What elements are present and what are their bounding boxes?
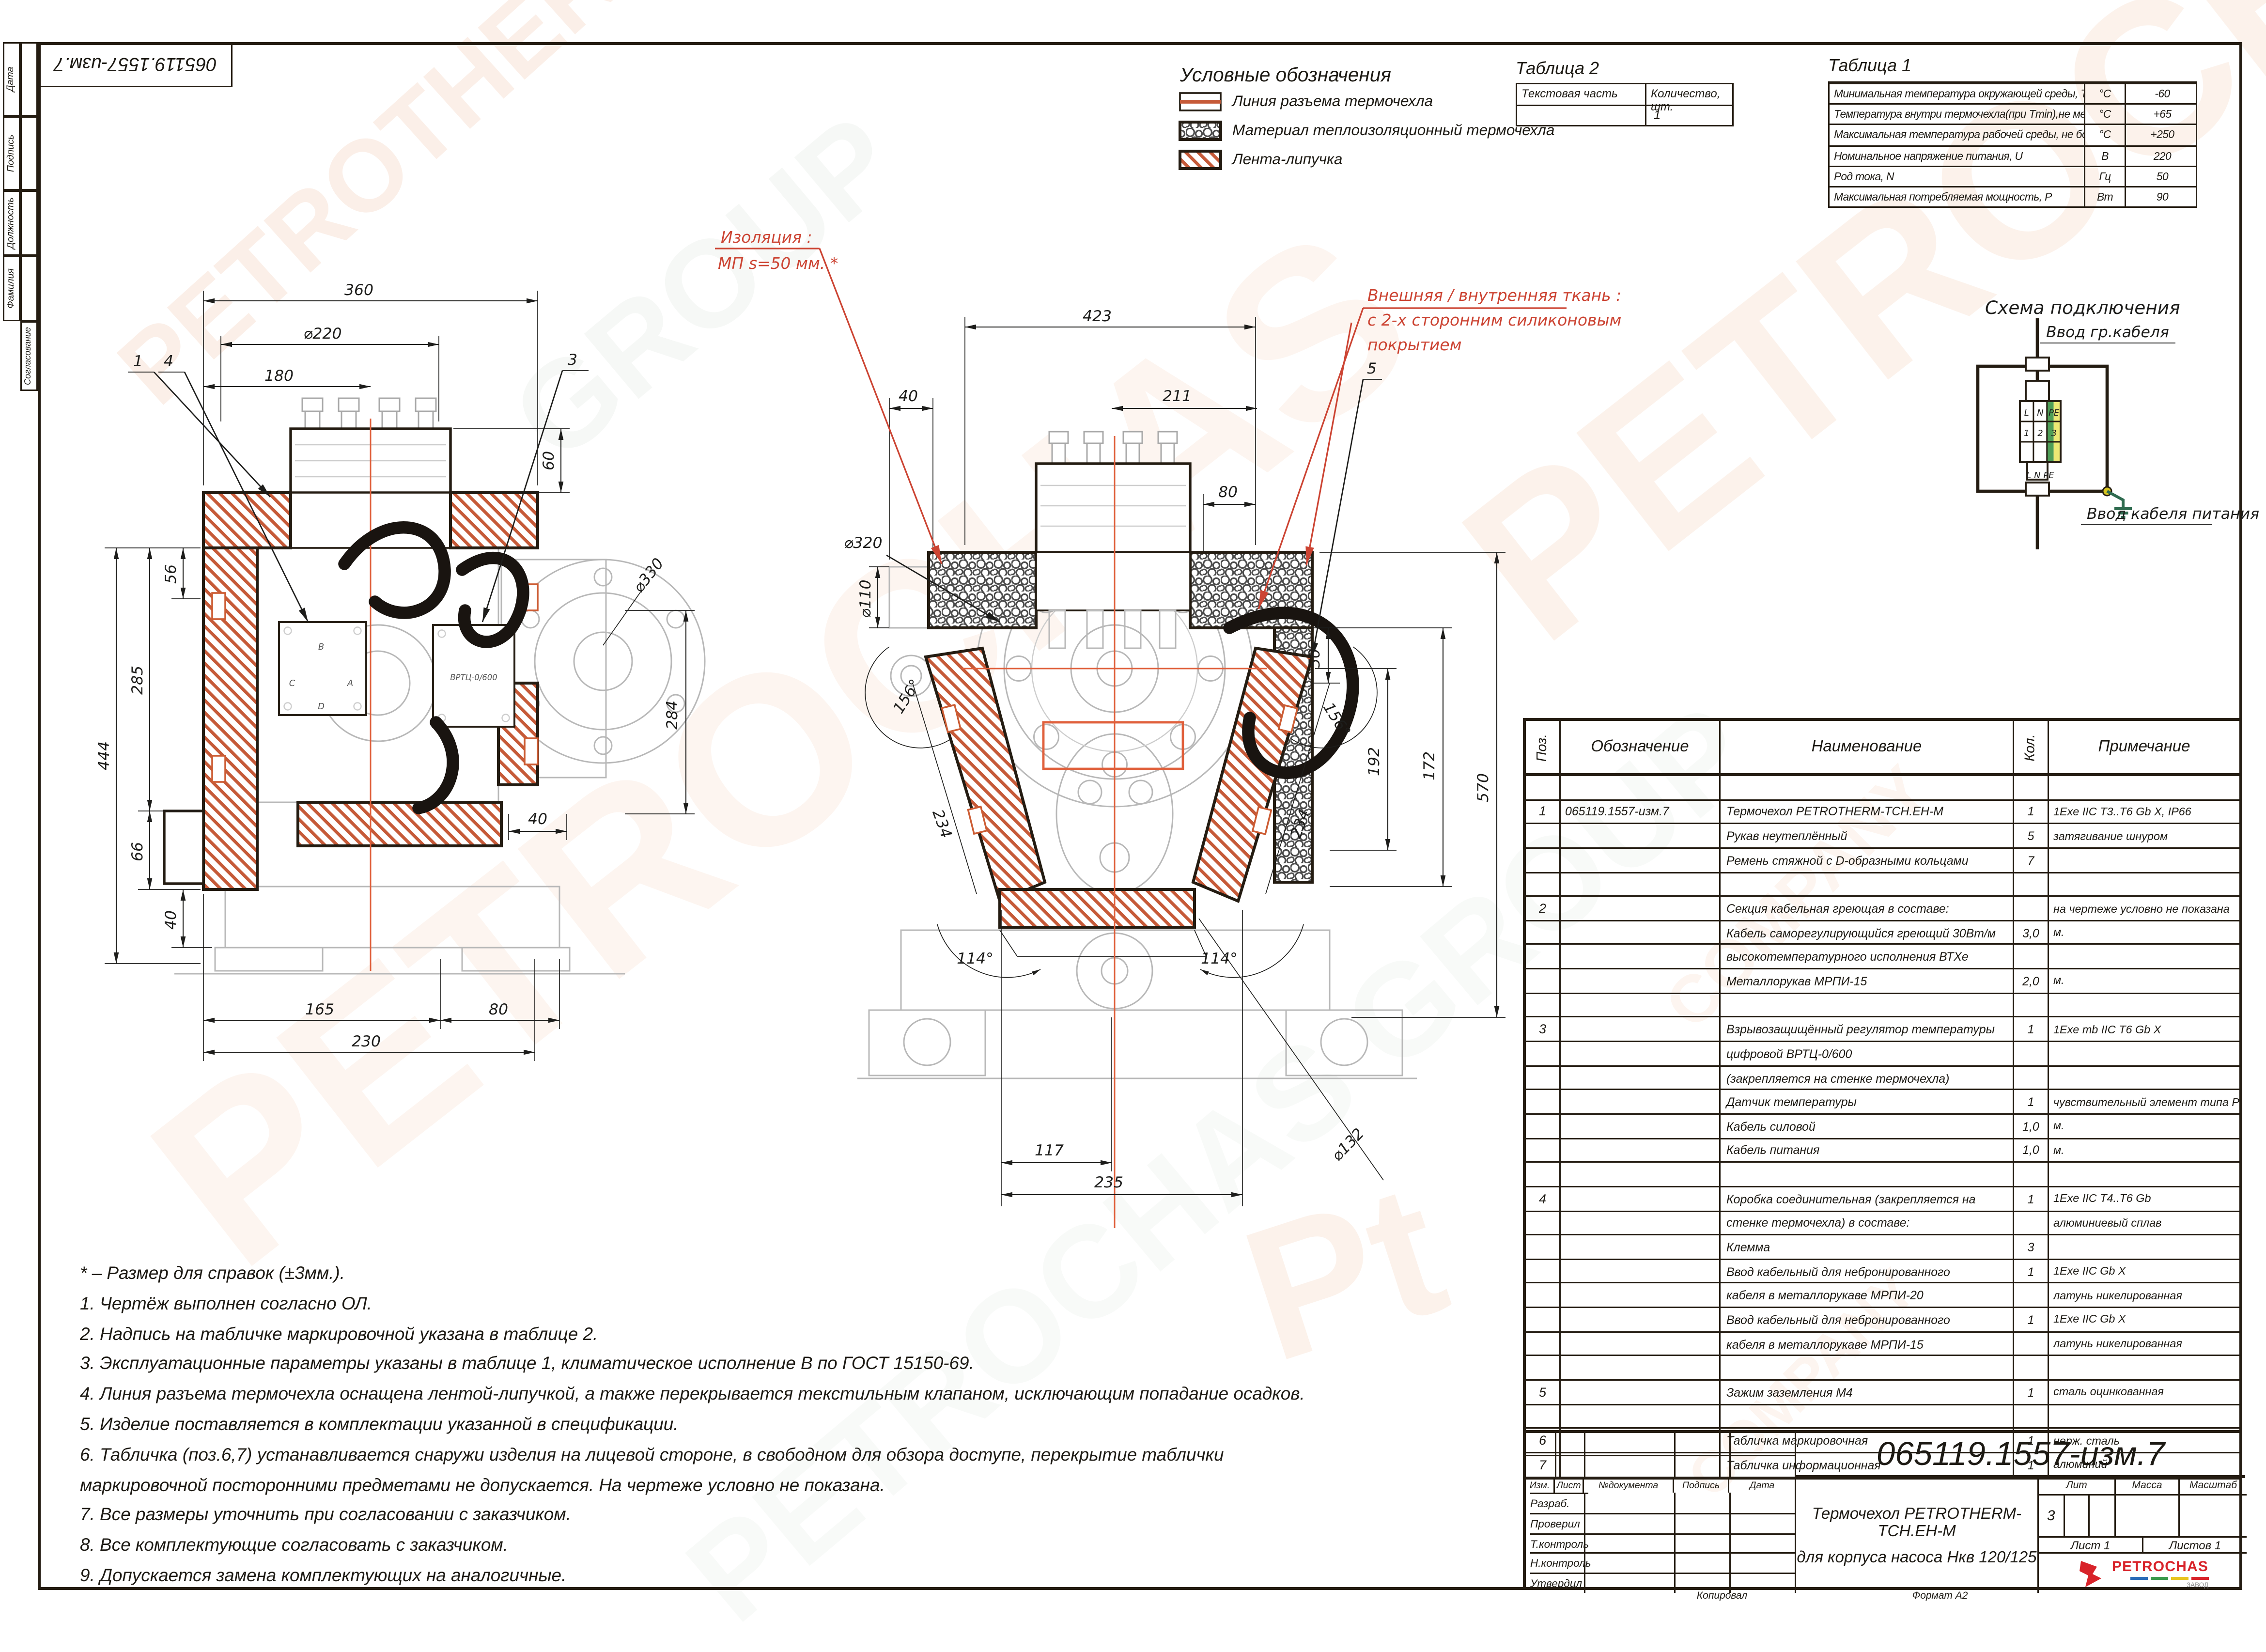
parts-row: 5 Зажим заземления М4 1 сталь оцинкованн…: [1526, 1379, 2239, 1403]
legend-swatches: [1180, 93, 1221, 169]
drawing-title: Термочехол PETROTHERM-TCH.EH-M для корпу…: [1795, 1477, 2037, 1593]
logo-bar-blue: [2130, 1577, 2147, 1580]
part-qty: [2014, 994, 2049, 1016]
flange-block: [1036, 464, 1190, 552]
param-value: 90: [2126, 187, 2199, 207]
part-designation: [1561, 1139, 1721, 1162]
staff-label: Т.контроль: [1530, 1533, 1588, 1553]
part-note: [2049, 1163, 2239, 1186]
terminal-bottom-labels: L N PE: [2026, 470, 2054, 481]
parts-row: кабеля в металлорукаве МРПИ-20 латунь ни…: [1526, 1282, 2239, 1307]
staff-rows: Разраб. Проверил Т.контроль Н.контроль У…: [1526, 1493, 1795, 1593]
part-name: Датчик температуры: [1721, 1091, 2014, 1113]
sheet: PETROCHAS PETROTHERM GROUP COMPANY Pt PE…: [0, 0, 2266, 1603]
part-name: Зажим заземления М4: [1721, 1381, 2014, 1403]
param-name: Минимальная температура окружающей среды…: [1830, 84, 2085, 104]
param-value: -60: [2126, 84, 2199, 104]
petrochas-logo-text: PETROCHAS: [2112, 1559, 2208, 1575]
parts-row: [1526, 775, 2239, 799]
part-designation: [1561, 1066, 1721, 1089]
parts-row: цифровой ВРТЦ-0/600: [1526, 1041, 2239, 1065]
mass-value: [2116, 1496, 2180, 1538]
dim-label: 180: [264, 367, 294, 385]
lit-mass-scale-block: Лит Масса Масштаб 3 Лист 1 Листов 1 PETR…: [2037, 1477, 2245, 1593]
dim-label: 40: [528, 810, 547, 828]
part-qty: [2014, 1212, 2049, 1234]
part-pos: [1526, 1091, 1561, 1113]
table-2-header: Текстовая часть: [1517, 84, 1646, 106]
dim-label: 165: [305, 1001, 334, 1018]
note-line: 1. Чертёж выполнен согласно ОЛ.: [80, 1289, 1519, 1319]
schema-top-label: Ввод гр.кабеля: [2046, 324, 2169, 341]
part-note: [2049, 873, 2239, 896]
part-name: (закрепляется на стенке термочехла): [1721, 1066, 2014, 1089]
front-view-callouts: 5: [1312, 360, 1382, 657]
param-value: +65: [2126, 105, 2199, 125]
part-qty: 2,0: [2014, 969, 2049, 992]
parts-row: Кабель силовой 1,0 м.: [1526, 1113, 2239, 1138]
param-value: +250: [2126, 125, 2199, 145]
part-note: [2049, 945, 2239, 968]
part-name: [1721, 1405, 2014, 1428]
part-designation: [1561, 1381, 1721, 1403]
table-1-row: Номинальное напряжение питания, U В 220: [1830, 145, 2196, 166]
logo-bar-red: [2191, 1577, 2208, 1580]
param-unit: °С: [2085, 105, 2126, 125]
parts-table: Поз. Обозначение Наименование Кол. Приме…: [1523, 718, 2242, 1479]
part-qty: [2014, 945, 2049, 968]
dim-label: 40: [899, 388, 918, 405]
callout-label: 4: [164, 353, 173, 370]
parts-header-note: Примечание: [2049, 721, 2239, 773]
dim-label: 80: [489, 1001, 508, 1018]
part-designation: [1561, 897, 1721, 920]
petrochas-logo-sub: ЗАВОД: [2187, 1581, 2208, 1589]
part-name: Ввод кабельный для небронированного: [1721, 1308, 2014, 1331]
dim-label: 444: [95, 741, 113, 770]
dim-label: 156°: [890, 676, 924, 717]
parts-row: [1526, 1355, 2239, 1379]
part-pos: [1526, 1139, 1561, 1162]
table-1-title: Таблица 1: [1828, 55, 1911, 76]
part-designation: [1561, 1212, 1721, 1234]
part-name: Металлорукав МРПИ-15: [1721, 969, 2014, 992]
part-pos: [1526, 945, 1561, 968]
dim-label: 60: [540, 451, 558, 470]
table-2-cell: [1517, 106, 1646, 125]
part-pos: [1526, 1042, 1561, 1065]
terminal-label: 2: [2037, 428, 2043, 438]
left-view: B C A D ВРТЦ-0/600: [95, 281, 705, 1061]
parts-row: Кабель питания 1,0 м.: [1526, 1138, 2239, 1162]
table-1-row: Минимальная температура окружающей среды…: [1830, 83, 2196, 104]
callout-label: 1: [133, 353, 143, 370]
junction-box: B C A D: [279, 622, 366, 715]
parts-header-desig: Обозначение: [1561, 721, 1721, 773]
dim-label: 50: [1306, 649, 1323, 668]
part-name: [1721, 873, 2014, 896]
dim-label: ⌀320: [844, 534, 882, 552]
dim-label: 80: [1218, 483, 1238, 501]
dim-label: 117: [1035, 1142, 1064, 1159]
parts-row: [1526, 872, 2239, 896]
part-pos: [1526, 849, 1561, 872]
part-designation: [1561, 776, 1721, 799]
staff-label: Утвердил: [1530, 1573, 1588, 1593]
parts-row: Ввод кабельный для небронированного 1 1E…: [1526, 1258, 2239, 1282]
part-note: [2049, 776, 2239, 799]
parts-row: стенке термочехла) в составе: алюминиевы…: [1526, 1210, 2239, 1234]
part-qty: 1: [2014, 1308, 2049, 1331]
part-name: Кабель саморегулирующийся греющий 30Вт/м: [1721, 921, 2014, 944]
part-pos: [1526, 921, 1561, 944]
part-designation: [1561, 1356, 1721, 1379]
part-qty: [2014, 1284, 2049, 1307]
table-2-cell: 1: [1646, 106, 1732, 125]
dim-label: 234: [929, 807, 955, 841]
part-name: Коробка соединительная (закрепляется на: [1721, 1187, 2014, 1210]
part-designation: [1561, 1405, 1721, 1428]
part-designation: [1561, 1236, 1721, 1259]
part-name: Секция кабельная греющая в составе:: [1721, 897, 2014, 920]
part-name: Взрывозащищённый регулятор температуры: [1721, 1018, 2014, 1041]
thermal-cover-wedges: [926, 648, 1312, 956]
param-name: Максимальная потребляемая мощность, P: [1830, 187, 2085, 207]
regulator-label: ВРТЦ-0/600: [450, 673, 497, 682]
dim-label: 230: [352, 1033, 381, 1050]
doc-number: 065119.1557-изм.7: [1795, 1433, 2245, 1477]
note-line: маркировочной посторонними предметами не…: [80, 1470, 1519, 1500]
param-unit: Вт: [2085, 187, 2126, 207]
note-line: 4. Линия разъема термочехла оснащена лен…: [80, 1380, 1519, 1410]
annotation-insulation: МП s=50 мм. *: [718, 254, 838, 273]
flange-lower: [1036, 552, 1190, 610]
part-pos: 5: [1526, 1381, 1561, 1403]
param-unit: Гц: [2085, 167, 2126, 186]
table-1-row: Максимальная температура рабочей среды, …: [1830, 124, 2196, 145]
kopiroval-label: Копировал: [1642, 1591, 1802, 1602]
part-name: Клемма: [1721, 1236, 2014, 1259]
part-designation: [1561, 1187, 1721, 1210]
part-qty: [2014, 1163, 2049, 1186]
part-qty: 1: [2014, 1260, 2049, 1282]
part-designation: [1561, 1042, 1721, 1065]
table-1-row: Род тока, N Гц 50: [1830, 165, 2196, 186]
part-qty: 7: [2014, 849, 2049, 872]
dim-label: 423: [1083, 308, 1112, 325]
parts-row: Металлорукав МРПИ-15 2,0 м.: [1526, 968, 2239, 992]
part-pos: [1526, 1284, 1561, 1307]
part-qty: [2014, 776, 2049, 799]
notes: * – Размер для справок (±3мм.). 1. Чертё…: [80, 1259, 1519, 1591]
dim-label: 114°: [1201, 950, 1238, 967]
legend-title: Условные обозначения: [1180, 64, 1391, 86]
part-qty: [2014, 1356, 2049, 1379]
parts-row: Ремень стяжной с D-образными кольцами 7: [1526, 847, 2239, 872]
col-podpis: Подпись: [1674, 1478, 1729, 1493]
annotation-fabric: с 2-х сторонним силиконовым: [1367, 311, 1621, 329]
scale-label: Масштаб: [2180, 1478, 2247, 1494]
dim-label: ⌀220: [303, 325, 341, 343]
part-qty: [2014, 1066, 2049, 1089]
part-designation: [1561, 1332, 1721, 1355]
parts-row: Рукав неутеплённый 5 затягивание шнуром: [1526, 823, 2239, 847]
part-pos: [1526, 1236, 1561, 1259]
parts-row: [1526, 1162, 2239, 1186]
col-data: Дата: [1729, 1478, 1795, 1493]
part-qty: [2014, 1332, 2049, 1355]
staff-label: Разраб.: [1530, 1493, 1588, 1512]
sheets-total: Листов 1: [2143, 1538, 2247, 1554]
part-designation: [1561, 1260, 1721, 1282]
part-name: стенке термочехла) в составе:: [1721, 1212, 2014, 1234]
staff-label: Н.контроль: [1530, 1553, 1588, 1573]
part-name: [1721, 1163, 2014, 1186]
annotation-insulation: Изоляция :: [721, 228, 812, 247]
callout-label: 5: [1367, 360, 1377, 377]
parts-row: 2 Секция кабельная греющая в составе: на…: [1526, 896, 2239, 920]
logo-bar-yellow: [2171, 1577, 2188, 1580]
part-designation: 065119.1557-изм.7: [1561, 800, 1721, 823]
part-note: алюминиевый сплав: [2049, 1212, 2239, 1234]
col-docnum: №документа: [1584, 1478, 1674, 1493]
title-block: 065119.1557-изм.7 Изм. Лист №документа П…: [1523, 1430, 2242, 1590]
dim-label: 235: [1094, 1174, 1123, 1191]
part-name: [1721, 776, 2014, 799]
part-note: [2049, 1066, 2239, 1089]
cover-foot: [164, 811, 203, 884]
terminal-label: N: [2037, 408, 2043, 418]
part-pos: [1526, 1066, 1561, 1089]
parts-row: 4 Коробка соединительная (закрепляется н…: [1526, 1186, 2239, 1210]
part-pos: [1526, 969, 1561, 992]
param-unit: В: [2085, 146, 2126, 166]
dim-label: 360: [344, 281, 373, 299]
part-qty: 1,0: [2014, 1139, 2049, 1162]
part-note: [2049, 1236, 2239, 1259]
company-logo: PETROCHAS ЗАВОД: [2039, 1552, 2247, 1594]
part-designation: [1561, 1163, 1721, 1186]
part-note: м.: [2049, 969, 2239, 992]
note-line: * – Размер для справок (±3мм.).: [80, 1259, 1519, 1289]
terminal-block: L N PE 1 2 3: [2020, 401, 2061, 462]
part-note: м.: [2049, 921, 2239, 944]
terminal-label: 3: [2051, 428, 2056, 438]
part-designation: [1561, 1091, 1721, 1113]
part-note: затягивание шнуром: [2049, 825, 2239, 847]
part-pos: [1526, 1332, 1561, 1355]
part-qty: 1,0: [2014, 1115, 2049, 1138]
part-qty: 3,0: [2014, 921, 2049, 944]
part-note: 1Exe mb IIC T6 Gb X: [2049, 1018, 2239, 1041]
jb-terminal-label: B: [318, 642, 324, 652]
schema-bottom-label: Ввод кабеля питания: [2087, 505, 2259, 523]
dim-label: ⌀110: [857, 579, 874, 618]
parts-row: 3 Взрывозащищённый регулятор температуры…: [1526, 1016, 2239, 1041]
part-name: Ремень стяжной с D-образными кольцами: [1721, 849, 2014, 872]
annotation-fabric: покрытием: [1367, 335, 1461, 354]
legend-item-label: Материал теплоизоляционный термочехла: [1232, 122, 1554, 140]
lit-value: 3: [2039, 1496, 2064, 1538]
param-unit: °С: [2085, 84, 2126, 104]
staff-label: Проверил: [1530, 1512, 1588, 1532]
dim-label: 56: [162, 564, 180, 584]
part-note: [2049, 994, 2239, 1016]
front-view: 423 40 211 80 ⌀110 ⌀320 50 192: [715, 228, 1621, 1228]
part-pos: [1526, 1115, 1561, 1138]
part-qty: 1: [2014, 1018, 2049, 1041]
flange-bolts: [302, 398, 436, 429]
drawing-title-line1: Термочехол PETROTHERM-TCH.EH-M: [1796, 1505, 2037, 1540]
dim-label: 284: [664, 701, 681, 730]
parts-row: Ввод кабельный для небронированного 1 1E…: [1526, 1307, 2239, 1331]
note-line: 9. Допускается замена комплектующих на а…: [80, 1561, 1519, 1591]
part-pos: 1: [1526, 800, 1561, 823]
heating-section-outline: [1043, 722, 1183, 769]
part-qty: [2014, 873, 2049, 896]
note-line: 8. Все комплектующие согласовать с заказ…: [80, 1531, 1519, 1561]
jb-terminal-label: A: [347, 678, 353, 688]
part-qty: [2014, 1405, 2049, 1428]
part-note: 1Exe IIC Gb X: [2049, 1308, 2239, 1331]
part-pos: [1526, 1260, 1561, 1282]
part-pos: [1526, 1163, 1561, 1186]
part-pos: [1526, 1308, 1561, 1331]
part-note: 1Exe IIC T4..T6 Gb: [2049, 1187, 2239, 1210]
dim-label: 211: [1163, 388, 1192, 405]
part-pos: 4: [1526, 1187, 1561, 1210]
drawing-title-line2: для корпуса насоса Нкв 120/125: [1797, 1549, 2036, 1566]
param-value: 220: [2126, 146, 2199, 166]
annotation-fabric: Внешняя / внутренняя ткань :: [1367, 286, 1621, 305]
param-name: Номинальное напряжение питания, U: [1830, 146, 2085, 166]
format-label: Формат А2: [1860, 1591, 2020, 1602]
part-note: м.: [2049, 1139, 2239, 1162]
part-note: [2049, 849, 2239, 872]
terminal-label: 1: [2024, 428, 2029, 438]
dim-label: 192: [1366, 747, 1383, 776]
table-1-row: Максимальная потребляемая мощность, P Вт…: [1830, 186, 2196, 207]
terminal-label: PE: [2049, 408, 2060, 418]
dim-label: 570: [1474, 773, 1492, 802]
part-pos: [1526, 1212, 1561, 1234]
part-pos: 2: [1526, 897, 1561, 920]
table-1-row: Температура внутри термочехла(при Tmin),…: [1830, 104, 2196, 125]
note-line: 6. Табличка (поз.6,7) устанавливается сн…: [80, 1440, 1519, 1470]
part-designation: [1561, 921, 1721, 944]
petrochas-logo-icon: [2077, 1558, 2106, 1590]
table-2-title: Таблица 2: [1516, 58, 1599, 78]
terminal-label: L: [2024, 408, 2029, 418]
legend-item-label: Лента-липучка: [1232, 151, 1342, 169]
part-designation: [1561, 825, 1721, 847]
parts-row: Датчик температуры 1 чувствительный элем…: [1526, 1089, 2239, 1113]
part-name: кабеля в металлорукаве МРПИ-15: [1721, 1332, 2014, 1355]
parts-header-pos: Поз.: [1535, 733, 1551, 761]
parts-row: 1 065119.1557-изм.7 Термочехол PETROTHER…: [1526, 799, 2239, 823]
part-note: м.: [2049, 1115, 2239, 1138]
part-designation: [1561, 945, 1721, 968]
flange-bolts: [1049, 432, 1177, 464]
param-name: Род тока, N: [1830, 167, 2085, 186]
part-pos: [1526, 825, 1561, 847]
part-designation: [1561, 1284, 1721, 1307]
param-name: Максимальная температура рабочей среды, …: [1830, 125, 2085, 145]
dim-label: 66: [129, 842, 146, 861]
table-1-grid: Минимальная температура окружающей среды…: [1828, 81, 2197, 208]
part-name: кабеля в металлорукаве МРПИ-20: [1721, 1284, 2014, 1307]
part-designation: [1561, 1018, 1721, 1041]
callout-label: 3: [568, 351, 577, 369]
col-list: Лист: [1555, 1478, 1584, 1493]
part-note: латунь никелированная: [2049, 1284, 2239, 1307]
part-note: 1Exe IIC Gb X: [2049, 1260, 2239, 1282]
part-pos: [1526, 873, 1561, 896]
parts-row: (закрепляется на стенке термочехла): [1526, 1065, 2239, 1089]
lit-label: Лит: [2039, 1478, 2116, 1494]
schema-title: Схема подключения: [1985, 297, 2180, 318]
part-name: Термочехол PETROTHERM-TCH.EH-M: [1721, 800, 2014, 823]
parts-row: [1526, 1403, 2239, 1428]
part-pos: 3: [1526, 1018, 1561, 1041]
part-qty: [2014, 1042, 2049, 1065]
part-name: цифровой ВРТЦ-0/600: [1721, 1042, 2014, 1065]
parts-row: высокотемпературного исполнения ВТХе: [1526, 944, 2239, 968]
title-header-row: Изм. Лист №документа Подпись Дата: [1526, 1477, 1795, 1493]
part-note: латунь никелированная: [2049, 1332, 2239, 1355]
dim-label: 114°: [957, 950, 993, 967]
part-qty: 3: [2014, 1236, 2049, 1259]
part-designation: [1561, 1115, 1721, 1138]
part-designation: [1561, 994, 1721, 1016]
part-note: [2049, 1042, 2239, 1065]
parts-row: [1526, 992, 2239, 1016]
part-note: чувствительный элемент типа PT100: [2049, 1091, 2239, 1113]
connection-schema: Схема подключения Ввод гр.кабеля L N PE …: [1978, 297, 2259, 549]
part-qty: [2014, 897, 2049, 920]
dim-label: 40: [162, 910, 180, 930]
legend-item-label: Линия разъема термочехла: [1232, 93, 1433, 110]
table-2-header: Количество, шт.: [1646, 84, 1732, 106]
dim-label: 172: [1421, 751, 1438, 780]
part-name: Рукав неутеплённый: [1721, 825, 2014, 847]
part-designation: [1561, 969, 1721, 992]
revision-grid: [1526, 1433, 1795, 1477]
part-name: [1721, 994, 2014, 1016]
part-qty: 1: [2014, 1187, 2049, 1210]
part-qty: 5: [2014, 825, 2049, 847]
jb-terminal-label: C: [289, 678, 295, 688]
parts-header-name: Наименование: [1721, 721, 2014, 773]
part-note: 1Exe IIC T3..T6 Gb X, IP66: [2049, 800, 2239, 823]
lower-bolts: [1049, 610, 1176, 648]
parts-row: Кабель саморегулирующийся греющий 30Вт/м…: [1526, 920, 2239, 944]
jb-terminal-label: D: [318, 701, 325, 712]
part-name: [1721, 1356, 2014, 1379]
part-designation: [1561, 849, 1721, 872]
part-designation: [1561, 873, 1721, 896]
part-name: высокотемпературного исполнения ВТХе: [1721, 945, 2014, 968]
parts-row: кабеля в металлорукаве МРПИ-15 латунь ни…: [1526, 1331, 2239, 1355]
note-line: 3. Эксплуатационные параметры указаны в …: [80, 1349, 1519, 1379]
logo-bar-green: [2150, 1577, 2168, 1580]
parts-rows: 1 065119.1557-изм.7 Термочехол PETROTHER…: [1526, 775, 2239, 1476]
param-unit: °С: [2085, 125, 2126, 145]
param-name: Температура внутри термочехла(при Tmin),…: [1830, 105, 2085, 125]
parts-header-qty: Кол.: [2023, 733, 2039, 761]
note-line: 7. Все размеры уточнить при согласовании…: [80, 1500, 1519, 1530]
part-qty: 1: [2014, 1381, 2049, 1403]
